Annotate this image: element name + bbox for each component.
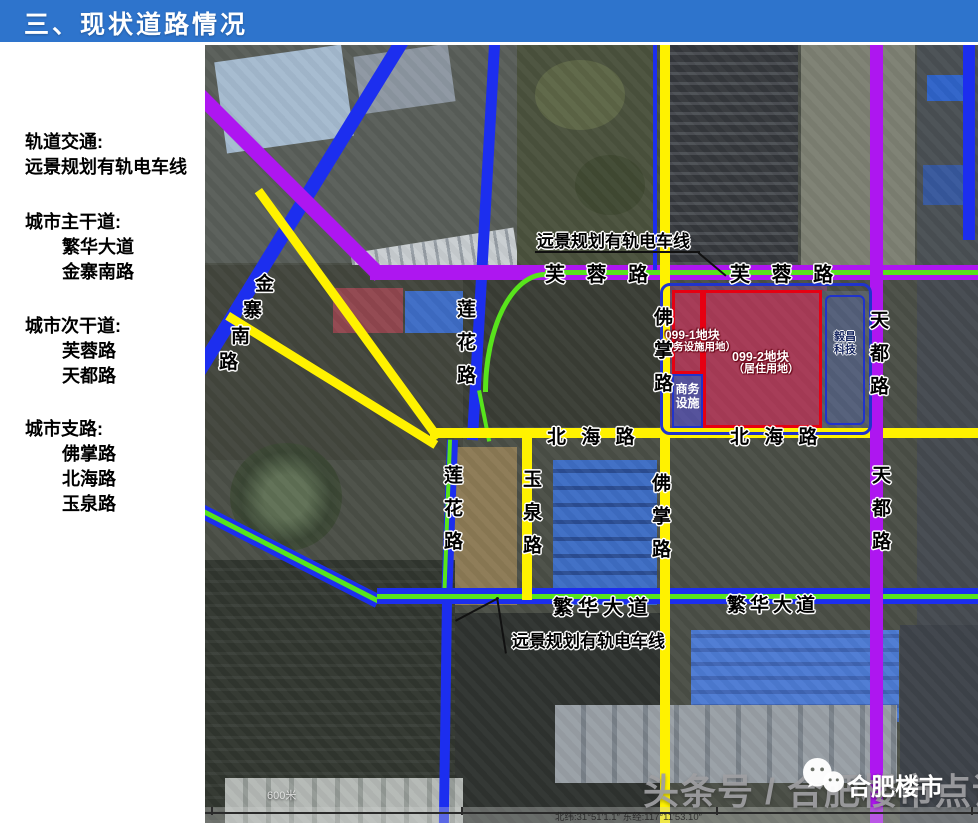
legend-arterial-item: 金寨南路: [25, 260, 134, 285]
slide-header: 三、现状道路情况: [0, 0, 978, 42]
yichang-tech-label: 毅昌 科技: [823, 331, 867, 357]
biz-label-line1: 商务: [674, 382, 701, 396]
legend-branch-item: 佛掌路: [25, 442, 116, 467]
legend-branch-item: 玉泉路: [25, 492, 116, 517]
legend-rail-heading: 轨道交通:: [25, 130, 187, 155]
legend-secondary-item: 天都路: [25, 364, 121, 389]
legend-sidebar: 轨道交通: 远景规划有轨电车线 城市主干道: 繁华大道 金寨南路 城市次干道: …: [0, 42, 205, 823]
legend-secondary-heading: 城市次干道:: [25, 314, 121, 339]
label-jinzhai-char: 寨: [243, 295, 262, 322]
label-furong-right: 芙 蓉 路: [730, 258, 841, 287]
road-tiandu: [870, 45, 883, 823]
label-fozhang-north: 佛掌路: [648, 307, 675, 406]
tram-annotation-bottom: 远景规划有轨电车线: [512, 627, 665, 652]
scale-tick: [211, 807, 213, 815]
legend-branch-heading: 城市支路:: [25, 417, 116, 442]
zone-yichang-block: [825, 295, 865, 425]
legend-rail-item: 远景规划有轨电车线: [25, 155, 187, 180]
scale-label: 600米: [267, 787, 296, 803]
parcel2-subtitle: （居住用地）: [733, 360, 799, 376]
legend-branch-item: 北海路: [25, 467, 116, 492]
legend-rail-section: 轨道交通: 远景规划有轨电车线: [25, 130, 187, 180]
label-fanhua-right: 繁华大道: [727, 590, 819, 617]
label-jinzhai-char: 南: [231, 321, 250, 348]
legend-arterial-heading: 城市主干道:: [25, 210, 134, 235]
road-fanhua: [377, 588, 978, 604]
label-lianhua-north: 莲花路: [451, 299, 478, 398]
scale-tick: [461, 807, 463, 815]
parcel-biz-facility: 商务 设施: [672, 374, 703, 428]
wechat-icon: [801, 757, 847, 797]
biz-label-line2: 设施: [674, 396, 701, 410]
legend-secondary-item: 芙蓉路: [25, 339, 121, 364]
legend-arterial-item: 繁华大道: [25, 235, 134, 260]
label-tiandu-south: 天都路: [866, 465, 893, 564]
label-beihai-left: 北 海 路: [547, 422, 640, 449]
label-fozhang-south: 佛掌路: [646, 473, 673, 572]
label-lianhua-south: 莲花路: [438, 465, 465, 564]
label-yuquan: 玉泉路: [517, 469, 544, 568]
legend-arterial-section: 城市主干道: 繁华大道 金寨南路: [25, 210, 134, 285]
satellite-map: 商务 设施 毅昌 科技 099-1地块 （商务设施用地） 099-2地块 （居住…: [205, 45, 978, 823]
label-jinzhai-char: 路: [219, 347, 238, 374]
company-line1: 毅昌: [823, 331, 867, 344]
road-right-edge: [963, 45, 975, 240]
label-jinzhai-char: 金: [255, 269, 274, 296]
page-title: 三、现状道路情况: [24, 5, 248, 41]
label-beihai-right: 北 海 路: [730, 422, 823, 449]
tram-annotation-top: 远景规划有轨电车线: [537, 227, 690, 252]
legend-branch-section: 城市支路: 佛掌路 北海路 玉泉路: [25, 417, 116, 517]
legend-secondary-section: 城市次干道: 芙蓉路 天都路: [25, 314, 121, 389]
watermark-wechat-name: 合肥楼市: [847, 767, 943, 802]
label-furong-left: 芙 蓉 路: [545, 258, 656, 287]
label-tiandu-north: 天都路: [864, 310, 891, 409]
label-fanhua-left: 繁华大道: [553, 591, 653, 620]
tram-line-fanhua: [377, 594, 978, 599]
tram-annotation-top-underline: [535, 251, 700, 253]
company-line2: 科技: [823, 344, 867, 357]
